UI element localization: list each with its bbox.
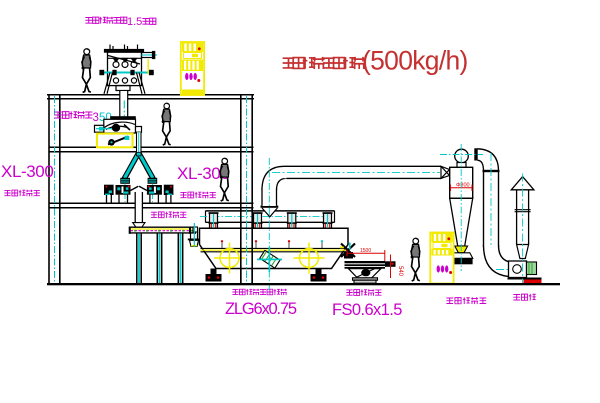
svg-text:Φ800: Φ800 bbox=[456, 183, 470, 189]
svg-text:FS0.6x1.5: FS0.6x1.5 bbox=[332, 301, 402, 319]
svg-text:1500: 1500 bbox=[360, 248, 371, 254]
svg-text:XL-300: XL-300 bbox=[1, 162, 53, 181]
svg-text:(500kg/h): (500kg/h) bbox=[362, 46, 468, 76]
svg-text:1.5: 1.5 bbox=[127, 16, 142, 28]
svg-text:540: 540 bbox=[397, 266, 403, 277]
svg-text:ZLG6x0.75: ZLG6x0.75 bbox=[225, 300, 297, 318]
svg-text:3: 3 bbox=[93, 112, 99, 124]
